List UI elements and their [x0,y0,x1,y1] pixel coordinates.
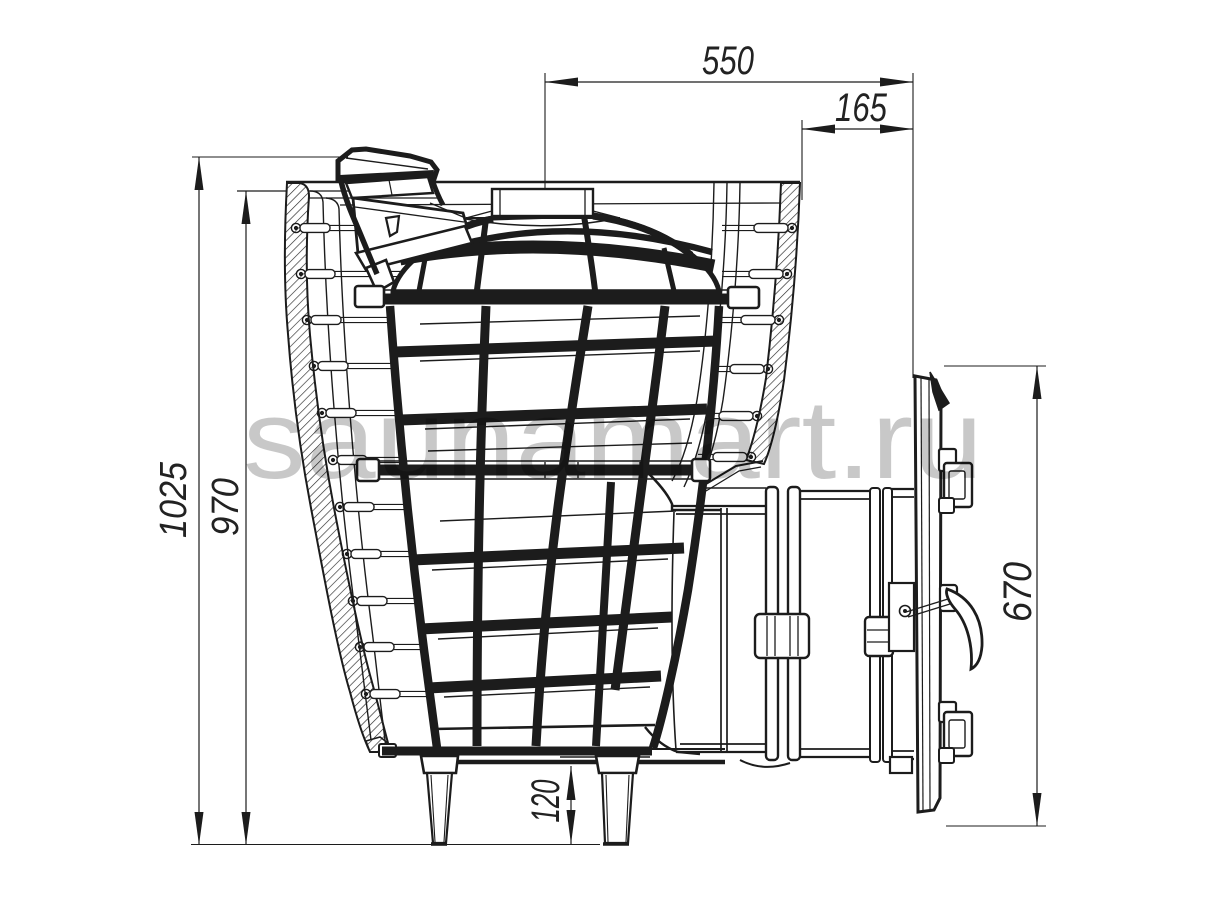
svg-text:970: 970 [205,478,247,536]
svg-text:120: 120 [524,780,568,823]
svg-text:670: 670 [996,562,1040,622]
svg-text:165: 165 [835,86,888,130]
svg-text:1025: 1025 [153,461,195,538]
svg-text:550: 550 [702,39,754,83]
svg-text:saunamart.ru: saunamart.ru [243,377,983,502]
